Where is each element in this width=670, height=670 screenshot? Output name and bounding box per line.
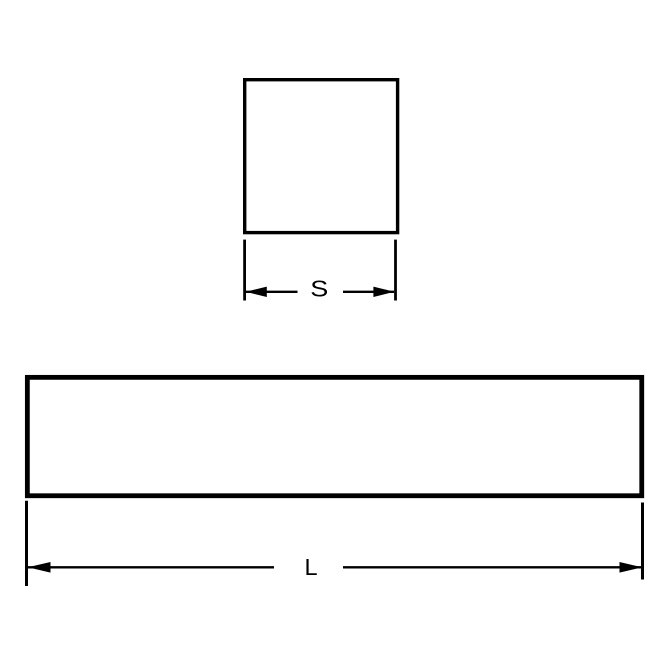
svg-text:S: S — [310, 276, 328, 302]
svg-text:L: L — [304, 554, 317, 580]
